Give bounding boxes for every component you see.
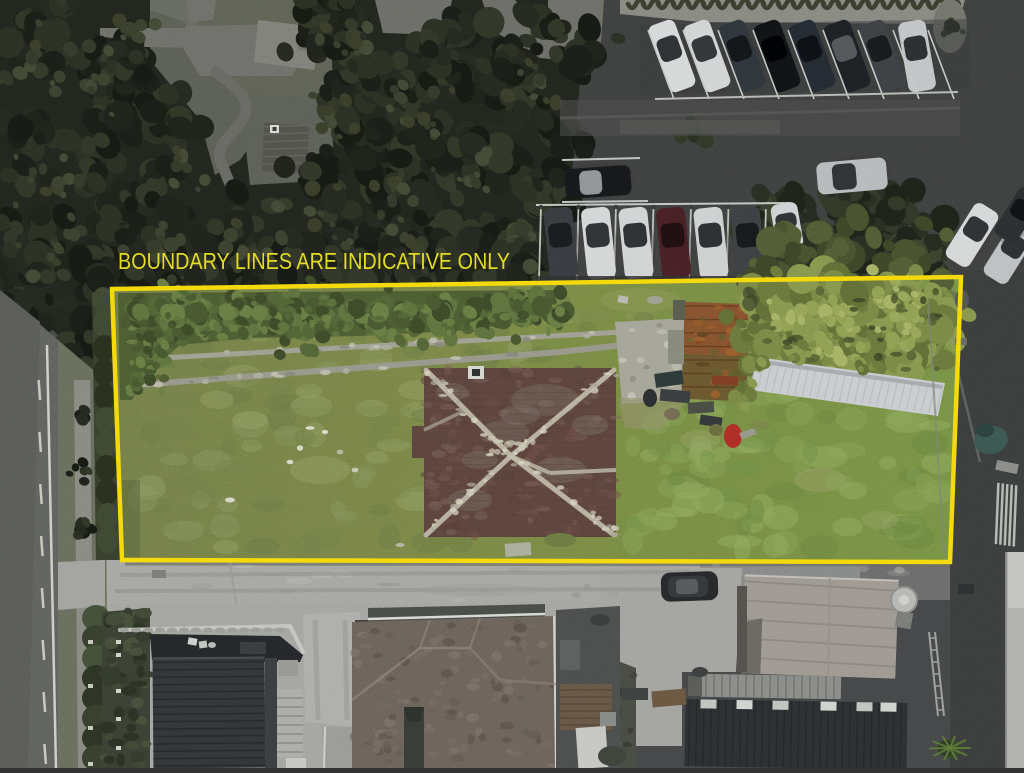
svg-text:BOUNDARY LINES ARE INDICATIVE: BOUNDARY LINES ARE INDICATIVE ONLY (118, 248, 510, 274)
